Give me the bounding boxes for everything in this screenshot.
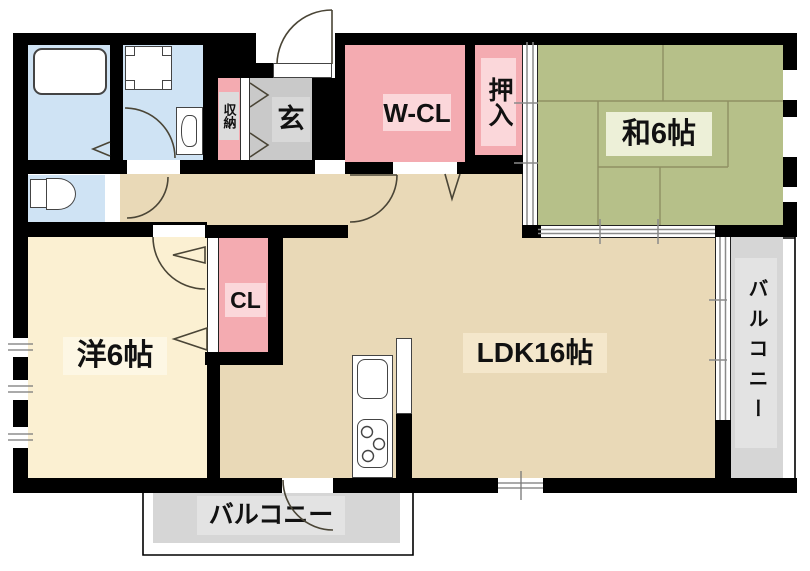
wall — [268, 238, 283, 365]
window-right-1 — [783, 70, 797, 100]
wcl-label: W-CL — [377, 94, 457, 131]
door-opening-wcl — [393, 162, 457, 174]
wall — [13, 33, 28, 493]
wall — [465, 155, 523, 174]
entrance-door-swing-arc — [277, 10, 332, 64]
hallway-floor — [120, 174, 522, 225]
floorplan: 和6帖 W-CL 押入 玄 収納 洋6帖 CL LDK16帖 バルコニー バルコ… — [0, 0, 810, 571]
ldk-floor-left — [220, 365, 283, 478]
sliding-door-washitsu-bottom — [538, 225, 715, 238]
window-left-3 — [13, 427, 28, 448]
window-right-2 — [783, 117, 797, 157]
genkan-label: 玄 — [272, 97, 310, 142]
kitchen-counter-wall — [396, 338, 412, 414]
wall — [522, 33, 538, 43]
kitchen-sink — [357, 359, 388, 399]
oshiire-label: 押入 — [481, 58, 516, 146]
pan-corner — [162, 80, 172, 90]
kitchen-stove — [357, 419, 388, 468]
pan-corner — [162, 46, 172, 56]
wall — [345, 162, 393, 174]
wall — [465, 45, 475, 155]
door-opening-genkan — [315, 160, 345, 174]
pan-corner — [125, 80, 135, 90]
washbasin — [181, 115, 197, 147]
balcony-bottom-label: バルコニー — [197, 496, 345, 535]
window-right-3 — [783, 187, 797, 202]
closet-door — [207, 238, 219, 352]
wall — [312, 78, 335, 160]
wall — [396, 413, 412, 478]
wall — [715, 420, 731, 493]
wall — [207, 352, 220, 480]
washbasin-counter — [176, 107, 203, 155]
wall — [335, 33, 797, 45]
window-left-2 — [13, 380, 28, 400]
ldk-label: LDK16帖 — [463, 333, 607, 373]
western-room-label: 洋6帖 — [63, 337, 167, 375]
window-left-1 — [13, 338, 28, 357]
closet-label: CL — [225, 283, 266, 317]
door-opening-balcony — [282, 478, 333, 493]
bathtub — [33, 48, 107, 95]
ldk-floor-upper — [348, 225, 522, 238]
wall — [203, 45, 218, 160]
window-bottom — [498, 478, 543, 493]
balcony-right-label: バルコニー — [735, 258, 777, 448]
wall — [250, 63, 273, 78]
japanese-room-label: 和6帖 — [606, 112, 712, 156]
storage-label: 収納 — [219, 92, 239, 140]
wall — [715, 225, 783, 237]
wall — [335, 45, 345, 160]
wall — [522, 225, 541, 238]
sliding-door-washitsu-left — [522, 40, 538, 225]
storage-door — [240, 78, 250, 160]
entrance-door — [273, 63, 332, 78]
door-opening-western-room — [153, 225, 205, 237]
sliding-door-balcony-right — [715, 237, 731, 420]
toilet-tank — [30, 179, 47, 208]
door-opening-washroom — [127, 160, 180, 174]
wall — [110, 45, 123, 160]
wall — [13, 478, 797, 493]
washing-machine-pan — [125, 46, 172, 90]
pan-corner — [125, 46, 135, 56]
wall — [205, 225, 348, 238]
